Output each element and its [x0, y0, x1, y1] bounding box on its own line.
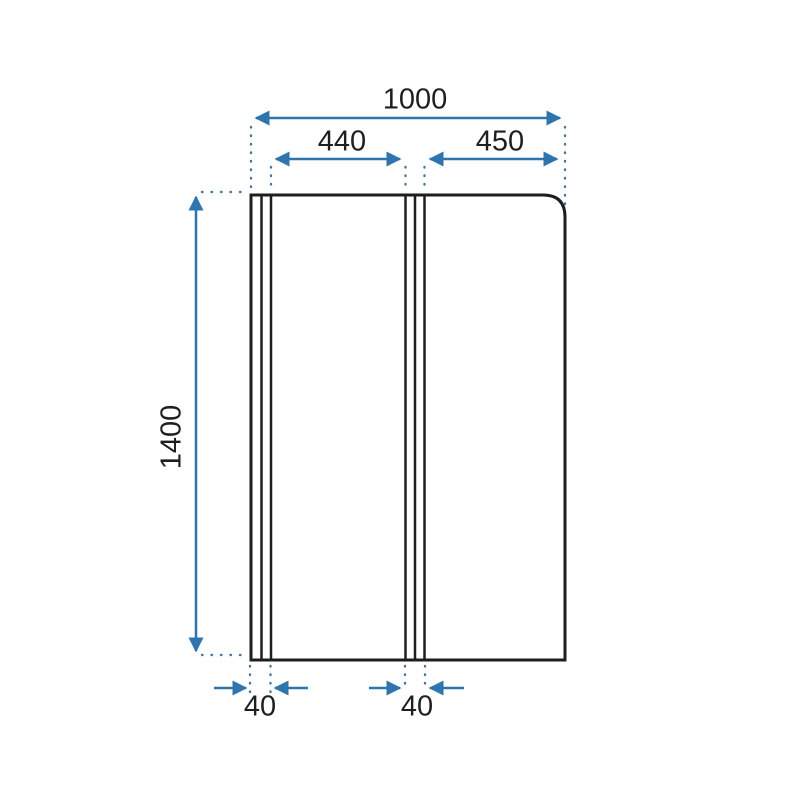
- dimension-label-left-panel-width: 440: [318, 128, 366, 157]
- dimension-label-left-profile-width: 40: [244, 693, 276, 722]
- dimension-drawing: [0, 0, 800, 800]
- dimension-label-right-panel-width: 450: [476, 128, 524, 157]
- screen-outline: [251, 195, 565, 660]
- drawing-canvas: 1000 440 450 1400 40 40: [0, 0, 800, 800]
- dimension-label-height: 1400: [158, 405, 187, 470]
- dimension-label-middle-profile-width: 40: [401, 693, 433, 722]
- dimension-label-total-width: 1000: [383, 86, 448, 115]
